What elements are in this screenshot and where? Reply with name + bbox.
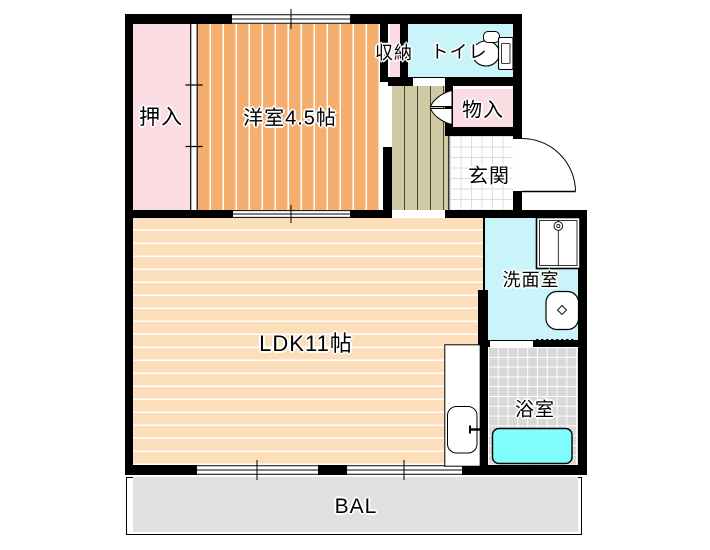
wall-segment: [480, 347, 488, 465]
window-top: [232, 14, 350, 24]
wall-partition-line: [483, 218, 485, 291]
room-label-shuno: 収納: [375, 39, 413, 65]
wall-segment: [445, 127, 522, 136]
room-hallway: [392, 86, 448, 211]
wall-segment: [125, 210, 587, 218]
wall-segment: [125, 14, 133, 475]
wall-segment: [383, 147, 392, 210]
window-bottom-right: [347, 465, 462, 475]
room-label-monoire: 物入: [462, 94, 504, 123]
room-label-ldk: LDK11帖: [259, 326, 353, 358]
entrance-door-glyph: [522, 139, 576, 192]
room-label-senmen: 洗面室: [503, 266, 560, 292]
opening-bathroom-door: [490, 341, 533, 347]
room-label-oshiire: 押入: [139, 101, 183, 131]
window-bottom-left: [197, 465, 318, 475]
opening-entrance-door: [513, 139, 522, 191]
opening-hallway-ldk: [392, 210, 445, 218]
sliding-partition: [233, 210, 350, 218]
room-label-balcony: BAL: [335, 495, 378, 519]
wall-segment: [478, 290, 488, 347]
opening-toilet-door: [413, 78, 445, 86]
room-label-toire: トイレ: [431, 38, 488, 64]
floor-plan: 押入 洋室4.5帖 収納 トイレ 物入 玄関 洗面室 LDK11帖 浴室 BAL: [0, 0, 710, 550]
room-label-yokushitsu: 浴室: [515, 395, 555, 422]
room-label-yoshitsu: 洋室4.5帖: [243, 102, 337, 131]
room-label-genkan: 玄関: [468, 160, 510, 189]
